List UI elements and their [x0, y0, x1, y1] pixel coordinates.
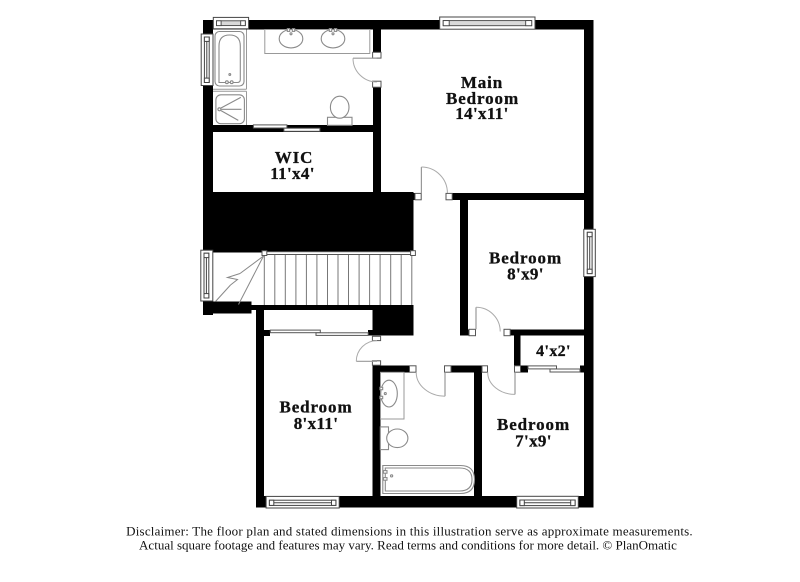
svg-text:Actual square footage and feat: Actual square footage and features may v… — [139, 537, 677, 552]
svg-text:4'x2': 4'x2' — [536, 343, 571, 360]
svg-text:7'x9': 7'x9' — [515, 431, 552, 450]
svg-text:11'x4': 11'x4' — [270, 164, 315, 183]
svg-text:Disclaimer: The floor plan and: Disclaimer: The floor plan and stated di… — [126, 523, 693, 538]
svg-text:8'x9': 8'x9' — [507, 265, 544, 284]
svg-text:14'x11': 14'x11' — [455, 104, 508, 123]
svg-text:8'x11': 8'x11' — [294, 414, 339, 433]
